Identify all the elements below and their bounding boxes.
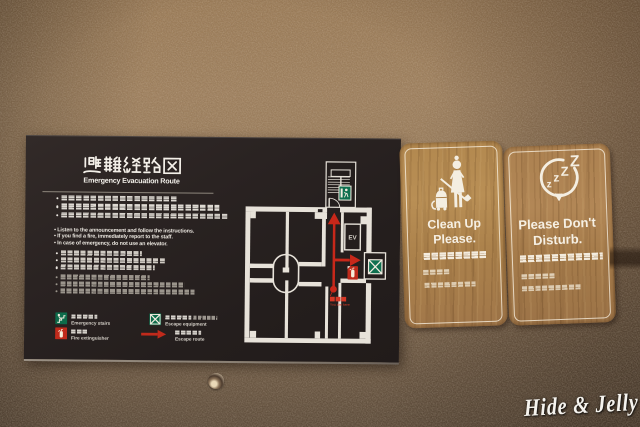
svg-text:z: z bbox=[546, 179, 551, 190]
svg-text:Z: Z bbox=[569, 153, 580, 170]
svg-text:EV: EV bbox=[348, 234, 357, 241]
svg-text:You are here: You are here bbox=[330, 303, 350, 307]
svg-text:Z: Z bbox=[560, 164, 569, 179]
svg-text:z: z bbox=[553, 170, 560, 184]
